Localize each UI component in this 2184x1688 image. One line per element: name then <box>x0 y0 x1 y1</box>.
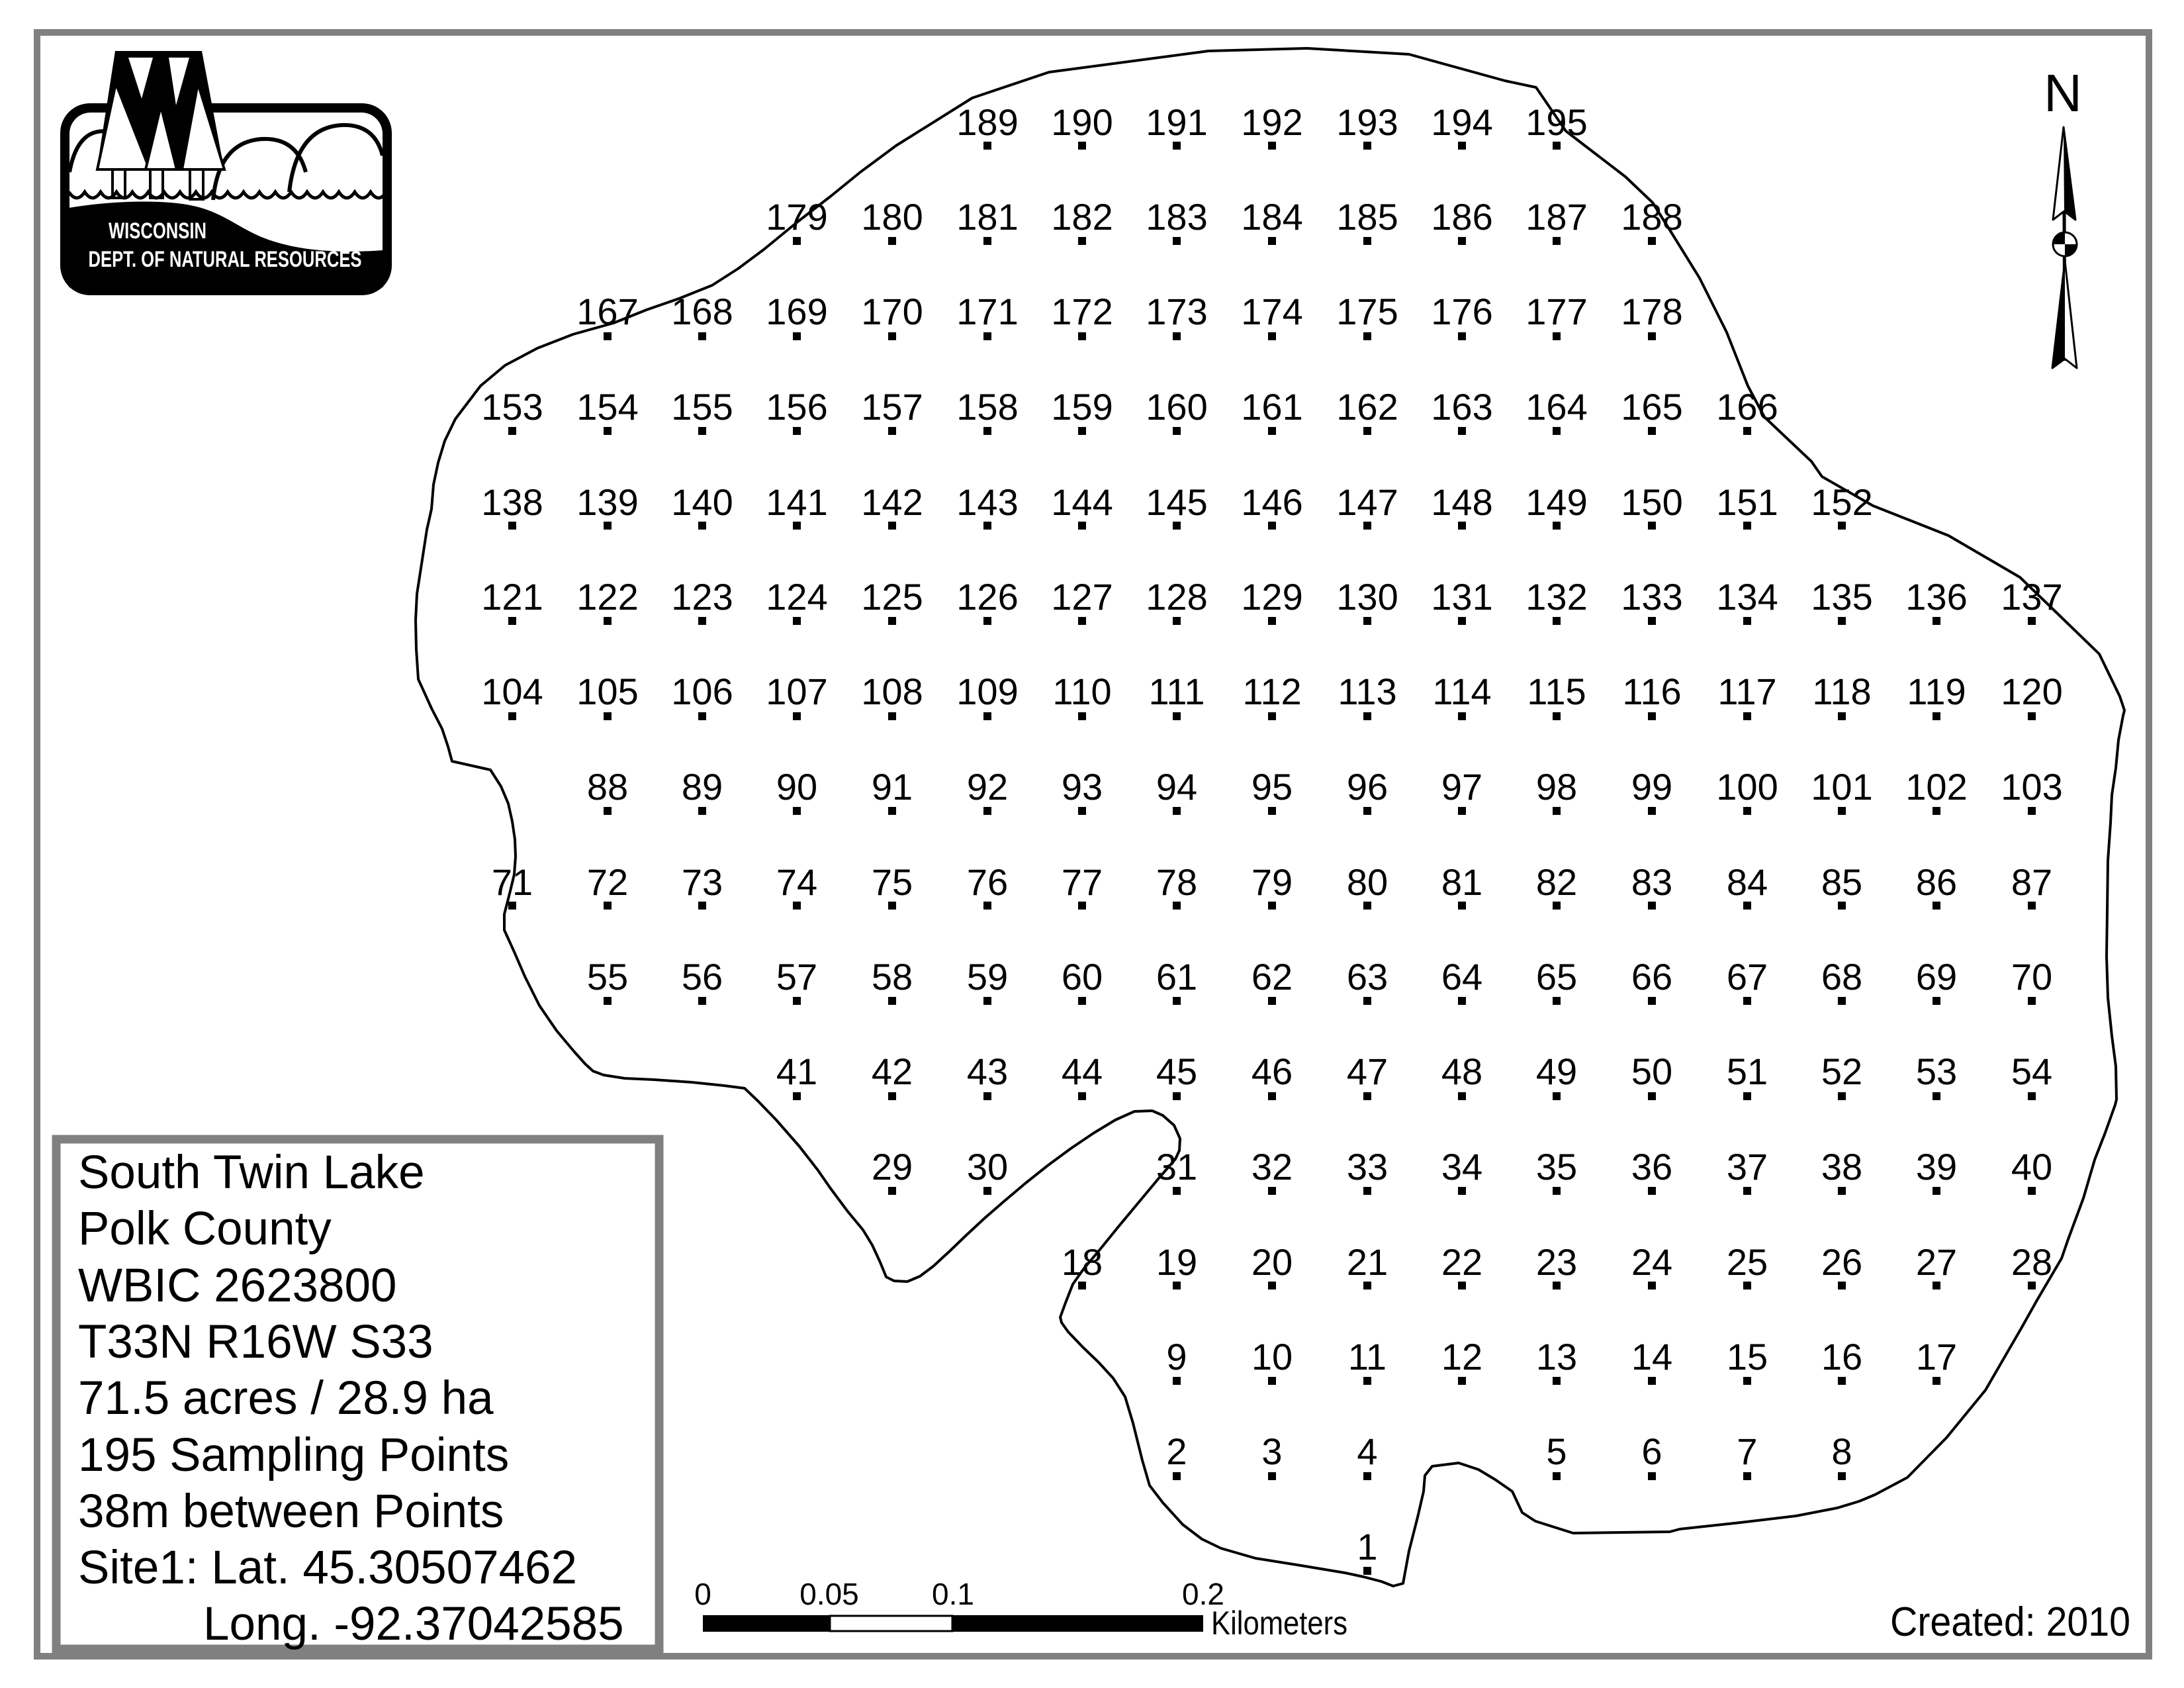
svg-text:22: 22 <box>1441 1241 1482 1283</box>
svg-text:135: 135 <box>1811 576 1872 618</box>
svg-text:DEPT. OF NATURAL RESOURCES: DEPT. OF NATURAL RESOURCES <box>89 247 362 272</box>
svg-text:39: 39 <box>1916 1146 1957 1188</box>
svg-text:38: 38 <box>1821 1146 1862 1188</box>
svg-text:129: 129 <box>1241 576 1302 618</box>
svg-text:24: 24 <box>1631 1241 1672 1283</box>
svg-text:1: 1 <box>1357 1526 1377 1568</box>
svg-text:156: 156 <box>766 386 827 428</box>
svg-text:74: 74 <box>776 861 817 903</box>
svg-text:181: 181 <box>956 196 1018 238</box>
svg-text:139: 139 <box>576 481 638 523</box>
svg-text:157: 157 <box>861 386 923 428</box>
svg-text:101: 101 <box>1811 766 1872 808</box>
svg-text:16: 16 <box>1821 1336 1862 1378</box>
svg-text:Polk County: Polk County <box>78 1203 332 1255</box>
svg-text:17: 17 <box>1916 1336 1957 1378</box>
svg-text:99: 99 <box>1631 766 1672 808</box>
svg-text:12: 12 <box>1441 1336 1482 1378</box>
svg-text:169: 169 <box>766 291 827 332</box>
svg-text:143: 143 <box>956 481 1018 523</box>
svg-text:5: 5 <box>1546 1430 1567 1472</box>
svg-text:40: 40 <box>2011 1146 2052 1188</box>
svg-text:45: 45 <box>1156 1051 1197 1092</box>
svg-text:183: 183 <box>1146 196 1207 238</box>
svg-text:105: 105 <box>576 671 638 712</box>
svg-text:55: 55 <box>587 956 628 998</box>
svg-text:64: 64 <box>1441 956 1482 998</box>
svg-text:53: 53 <box>1916 1051 1957 1092</box>
svg-text:70: 70 <box>2011 956 2052 998</box>
svg-text:193: 193 <box>1336 101 1398 143</box>
svg-text:43: 43 <box>967 1051 1008 1092</box>
svg-text:58: 58 <box>872 956 913 998</box>
svg-text:127: 127 <box>1051 576 1113 618</box>
svg-text:154: 154 <box>576 386 638 428</box>
svg-text:112: 112 <box>1242 671 1301 712</box>
svg-text:185: 185 <box>1336 196 1398 238</box>
svg-text:150: 150 <box>1621 481 1682 523</box>
svg-text:80: 80 <box>1347 861 1388 903</box>
svg-text:98: 98 <box>1536 766 1577 808</box>
svg-text:33: 33 <box>1347 1146 1388 1188</box>
svg-text:Created: 2010: Created: 2010 <box>1890 1599 2130 1645</box>
svg-text:25: 25 <box>1727 1241 1768 1283</box>
svg-text:106: 106 <box>671 671 733 712</box>
svg-text:85: 85 <box>1821 861 1862 903</box>
svg-text:107: 107 <box>766 671 827 712</box>
svg-text:Kilometers: Kilometers <box>1211 1605 1347 1642</box>
svg-text:92: 92 <box>967 766 1008 808</box>
svg-text:115: 115 <box>1527 671 1586 712</box>
svg-text:103: 103 <box>2001 766 2062 808</box>
svg-text:86: 86 <box>1916 861 1957 903</box>
svg-text:79: 79 <box>1251 861 1293 903</box>
svg-text:96: 96 <box>1347 766 1388 808</box>
svg-text:187: 187 <box>1525 196 1587 238</box>
svg-text:50: 50 <box>1631 1051 1672 1092</box>
svg-text:32: 32 <box>1251 1146 1293 1188</box>
svg-text:20: 20 <box>1251 1241 1293 1283</box>
svg-text:130: 130 <box>1336 576 1398 618</box>
svg-text:182: 182 <box>1051 196 1113 238</box>
svg-text:9: 9 <box>1166 1336 1187 1378</box>
svg-text:140: 140 <box>671 481 733 523</box>
svg-text:117: 117 <box>1717 671 1776 712</box>
svg-text:172: 172 <box>1051 291 1113 332</box>
svg-text:134: 134 <box>1716 576 1778 618</box>
svg-text:73: 73 <box>682 861 723 903</box>
svg-text:158: 158 <box>956 386 1018 428</box>
svg-text:23: 23 <box>1536 1241 1577 1283</box>
svg-text:90: 90 <box>776 766 817 808</box>
svg-text:59: 59 <box>967 956 1008 998</box>
svg-text:21: 21 <box>1347 1241 1388 1283</box>
svg-text:137: 137 <box>2001 576 2062 618</box>
svg-text:83: 83 <box>1631 861 1672 903</box>
svg-text:28: 28 <box>2011 1241 2052 1283</box>
svg-text:13: 13 <box>1536 1336 1577 1378</box>
svg-text:3: 3 <box>1261 1430 1282 1472</box>
svg-text:34: 34 <box>1441 1146 1482 1188</box>
svg-text:123: 123 <box>671 576 733 618</box>
svg-text:51: 51 <box>1727 1051 1768 1092</box>
svg-text:82: 82 <box>1536 861 1577 903</box>
svg-text:100: 100 <box>1716 766 1778 808</box>
svg-text:152: 152 <box>1811 481 1872 523</box>
svg-text:19: 19 <box>1156 1241 1197 1283</box>
svg-text:119: 119 <box>1907 671 1966 712</box>
svg-text:142: 142 <box>861 481 923 523</box>
svg-text:161: 161 <box>1241 386 1302 428</box>
svg-text:138: 138 <box>481 481 543 523</box>
svg-text:57: 57 <box>776 956 817 998</box>
svg-text:136: 136 <box>1905 576 1967 618</box>
svg-text:145: 145 <box>1146 481 1207 523</box>
svg-text:195: 195 <box>1525 101 1587 143</box>
svg-text:44: 44 <box>1062 1051 1103 1092</box>
svg-text:91: 91 <box>872 766 913 808</box>
svg-text:56: 56 <box>682 956 723 998</box>
svg-text:41: 41 <box>776 1051 817 1092</box>
svg-text:4: 4 <box>1357 1430 1377 1472</box>
svg-text:42: 42 <box>872 1051 913 1092</box>
svg-text:155: 155 <box>671 386 733 428</box>
svg-text:186: 186 <box>1431 196 1492 238</box>
svg-text:38m between Points: 38m between Points <box>78 1485 504 1538</box>
svg-text:95: 95 <box>1251 766 1293 808</box>
svg-text:0: 0 <box>694 1577 711 1611</box>
svg-text:194: 194 <box>1431 101 1492 143</box>
svg-text:2: 2 <box>1166 1430 1187 1472</box>
svg-text:62: 62 <box>1251 956 1293 998</box>
svg-text:195 Sampling Points: 195 Sampling Points <box>78 1429 509 1481</box>
svg-text:192: 192 <box>1241 101 1302 143</box>
svg-text:65: 65 <box>1536 956 1577 998</box>
svg-text:151: 151 <box>1716 481 1778 523</box>
svg-text:104: 104 <box>481 671 543 712</box>
svg-text:48: 48 <box>1441 1051 1482 1092</box>
svg-text:111: 111 <box>1148 671 1205 712</box>
svg-text:71: 71 <box>492 861 533 903</box>
svg-text:35: 35 <box>1536 1146 1577 1188</box>
svg-text:South Twin Lake: South Twin Lake <box>78 1147 425 1199</box>
svg-text:0.1: 0.1 <box>932 1577 974 1611</box>
svg-text:72: 72 <box>587 861 628 903</box>
svg-text:173: 173 <box>1146 291 1207 332</box>
svg-text:184: 184 <box>1241 196 1302 238</box>
svg-text:49: 49 <box>1536 1051 1577 1092</box>
svg-text:66: 66 <box>1631 956 1672 998</box>
svg-text:153: 153 <box>481 386 543 428</box>
svg-text:190: 190 <box>1051 101 1113 143</box>
svg-text:WISCONSIN: WISCONSIN <box>109 218 206 244</box>
svg-text:87: 87 <box>2011 861 2052 903</box>
svg-text:188: 188 <box>1621 196 1682 238</box>
svg-text:148: 148 <box>1431 481 1492 523</box>
svg-text:118: 118 <box>1812 671 1871 712</box>
svg-text:88: 88 <box>587 766 628 808</box>
svg-text:124: 124 <box>766 576 827 618</box>
svg-text:133: 133 <box>1621 576 1682 618</box>
svg-text:110: 110 <box>1052 671 1111 712</box>
svg-text:8: 8 <box>1831 1430 1852 1472</box>
svg-text:67: 67 <box>1727 956 1768 998</box>
svg-text:146: 146 <box>1241 481 1302 523</box>
svg-text:166: 166 <box>1716 386 1778 428</box>
svg-text:125: 125 <box>861 576 923 618</box>
svg-text:149: 149 <box>1525 481 1587 523</box>
svg-text:164: 164 <box>1525 386 1587 428</box>
svg-text:14: 14 <box>1631 1336 1672 1378</box>
svg-text:147: 147 <box>1336 481 1398 523</box>
svg-text:165: 165 <box>1621 386 1682 428</box>
svg-text:75: 75 <box>872 861 913 903</box>
svg-text:102: 102 <box>1905 766 1967 808</box>
svg-text:131: 131 <box>1431 576 1492 618</box>
svg-text:78: 78 <box>1156 861 1197 903</box>
svg-text:179: 179 <box>766 196 827 238</box>
svg-text:T33N R16W S33: T33N R16W S33 <box>78 1316 433 1368</box>
svg-text:N: N <box>2044 64 2082 122</box>
svg-text:94: 94 <box>1156 766 1197 808</box>
svg-text:29: 29 <box>872 1146 913 1188</box>
svg-text:36: 36 <box>1631 1146 1672 1188</box>
svg-text:WBIC 2623800: WBIC 2623800 <box>78 1260 397 1312</box>
svg-text:177: 177 <box>1525 291 1587 332</box>
svg-text:60: 60 <box>1062 956 1103 998</box>
svg-text:175: 175 <box>1336 291 1398 332</box>
svg-text:108: 108 <box>861 671 923 712</box>
svg-text:160: 160 <box>1146 386 1207 428</box>
svg-text:26: 26 <box>1821 1241 1862 1283</box>
svg-text:77: 77 <box>1062 861 1103 903</box>
svg-text:93: 93 <box>1062 766 1103 808</box>
svg-text:176: 176 <box>1431 291 1492 332</box>
svg-text:121: 121 <box>481 576 543 618</box>
svg-text:10: 10 <box>1251 1336 1293 1378</box>
svg-text:128: 128 <box>1146 576 1207 618</box>
svg-text:168: 168 <box>671 291 733 332</box>
svg-text:15: 15 <box>1727 1336 1768 1378</box>
svg-text:68: 68 <box>1821 956 1862 998</box>
svg-text:47: 47 <box>1347 1051 1388 1092</box>
svg-text:61: 61 <box>1156 956 1197 998</box>
svg-text:132: 132 <box>1525 576 1587 618</box>
svg-text:144: 144 <box>1051 481 1113 523</box>
svg-text:189: 189 <box>956 101 1018 143</box>
svg-text:163: 163 <box>1431 386 1492 428</box>
svg-text:180: 180 <box>861 196 923 238</box>
svg-text:126: 126 <box>956 576 1018 618</box>
svg-text:81: 81 <box>1441 861 1482 903</box>
svg-text:76: 76 <box>967 861 1008 903</box>
svg-text:170: 170 <box>861 291 923 332</box>
svg-text:141: 141 <box>766 481 827 523</box>
svg-text:63: 63 <box>1347 956 1388 998</box>
svg-text:178: 178 <box>1621 291 1682 332</box>
svg-text:27: 27 <box>1916 1241 1957 1283</box>
svg-text:116: 116 <box>1622 671 1681 712</box>
svg-text:11: 11 <box>1348 1336 1387 1378</box>
svg-text:37: 37 <box>1727 1146 1768 1188</box>
svg-text:113: 113 <box>1338 671 1396 712</box>
svg-text:122: 122 <box>576 576 638 618</box>
svg-text:159: 159 <box>1051 386 1113 428</box>
svg-text:31: 31 <box>1156 1146 1197 1188</box>
svg-text:52: 52 <box>1821 1051 1862 1092</box>
svg-text:6: 6 <box>1641 1430 1662 1472</box>
svg-text:69: 69 <box>1916 956 1957 998</box>
svg-text:Site1: Lat. 45.30507462: Site1: Lat. 45.30507462 <box>78 1542 577 1594</box>
svg-text:Long. -92.37042585: Long. -92.37042585 <box>203 1598 624 1650</box>
svg-text:54: 54 <box>2011 1051 2052 1092</box>
svg-text:0.05: 0.05 <box>799 1577 859 1611</box>
svg-text:171: 171 <box>956 291 1018 332</box>
svg-text:162: 162 <box>1336 386 1398 428</box>
svg-text:30: 30 <box>967 1146 1008 1188</box>
svg-text:18: 18 <box>1062 1241 1103 1283</box>
svg-text:120: 120 <box>2001 671 2062 712</box>
svg-text:109: 109 <box>956 671 1018 712</box>
svg-text:7: 7 <box>1737 1430 1757 1472</box>
svg-text:167: 167 <box>576 291 638 332</box>
svg-text:89: 89 <box>682 766 723 808</box>
svg-text:71.5 acres / 28.9 ha: 71.5 acres / 28.9 ha <box>78 1372 494 1425</box>
svg-text:174: 174 <box>1241 291 1302 332</box>
svg-text:114: 114 <box>1432 671 1491 712</box>
svg-text:84: 84 <box>1727 861 1768 903</box>
svg-text:191: 191 <box>1146 101 1207 143</box>
svg-text:97: 97 <box>1441 766 1482 808</box>
svg-text:46: 46 <box>1251 1051 1293 1092</box>
